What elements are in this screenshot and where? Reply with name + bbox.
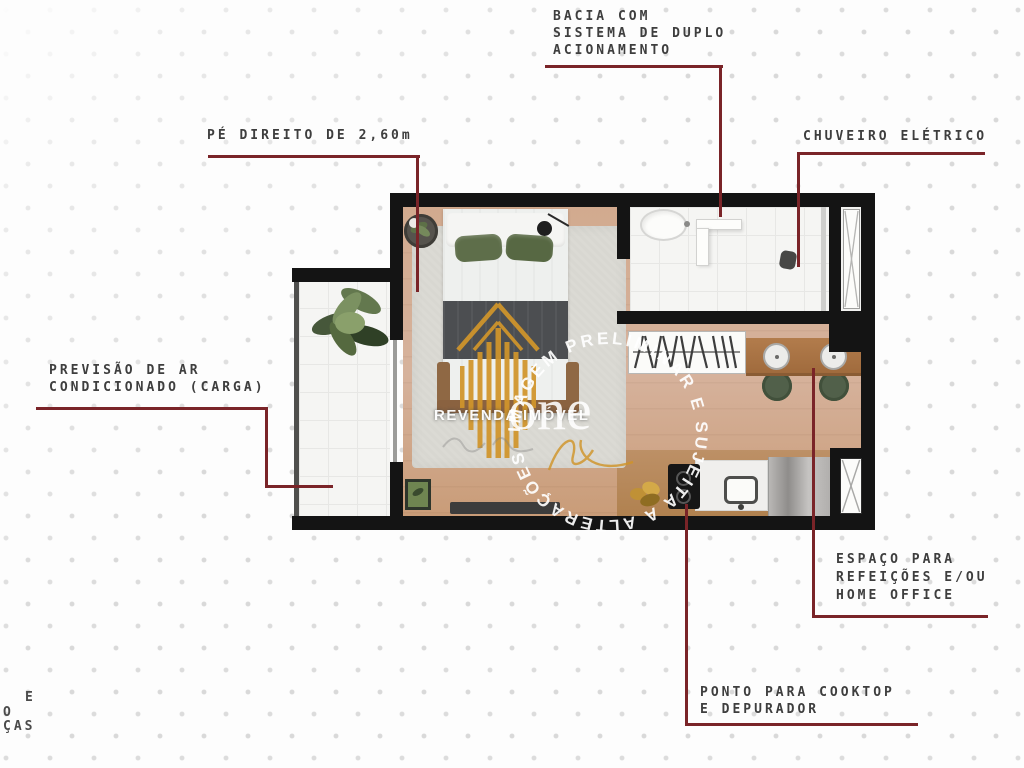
balcony-glass-door <box>393 340 397 462</box>
entry-door-x-icon <box>841 459 861 513</box>
bathroom-faucet <box>684 221 690 227</box>
callout-line-cooktop-v <box>685 504 688 726</box>
doormat <box>405 479 431 510</box>
plant-leaf <box>335 312 365 334</box>
wall-bathroom-closet <box>829 207 841 311</box>
callout-line-refeicoes-v <box>812 368 815 618</box>
wall-left-lower <box>390 462 403 516</box>
label-bacia: BACIA COM SISTEMA DE DUPLO ACIONAMENTO <box>553 8 726 59</box>
callout-line-chuveiro-v <box>797 152 800 267</box>
edge-fragment-3: ÇAS <box>3 718 35 735</box>
toilet-partition-v <box>696 228 709 266</box>
closet-panel <box>843 209 860 309</box>
kitchen-faucet <box>738 504 744 510</box>
plate-detail <box>832 355 836 359</box>
wall-balcony-top <box>292 268 403 282</box>
callout-line-cooktop-h <box>685 723 918 726</box>
callout-line-bacia-h <box>545 65 723 68</box>
doormat-leaf <box>411 486 424 497</box>
wall-left-upper <box>390 193 403 340</box>
label-bacia-line1: BACIA COM <box>553 8 726 25</box>
label-bacia-line2: SISTEMA DE DUPLO <box>553 25 726 42</box>
label-ar-line2: CONDICIONADO (CARGA) <box>49 379 266 396</box>
label-refeicoes-line1: ESPAÇO PARA <box>836 551 988 569</box>
balcony-railing <box>294 282 299 516</box>
disclaimer-arc-text: IMAGEM PRELIMINAR E SUJEITA A ALTERAÇÕES <box>505 329 711 535</box>
bed-green-pillow <box>505 233 554 262</box>
edge-fragment-1: E <box>25 689 36 706</box>
label-refeicoes: ESPAÇO PARA REFEIÇÕES E/OU HOME OFFICE <box>836 551 988 605</box>
label-pe-direito: PÉ DIREITO DE 2,60m <box>207 127 413 144</box>
kitchen-appliance <box>768 457 833 517</box>
wall-bathroom-left <box>617 193 630 259</box>
label-chuveiro: CHUVEIRO ELÉTRICO <box>803 128 987 145</box>
shower-glass <box>821 207 826 311</box>
label-ar-line1: PREVISÃO DE AR <box>49 362 266 379</box>
entry-door <box>840 458 862 514</box>
label-cooktop-line2: E DEPURADOR <box>700 701 895 718</box>
balcony-plant <box>305 286 391 364</box>
kitchen-sink <box>724 476 758 504</box>
pendant-lamp-icon <box>537 221 552 236</box>
label-bacia-line3: ACIONAMENTO <box>553 42 726 59</box>
callout-line-pedireito-v <box>416 155 419 292</box>
label-refeicoes-line2: REFEIÇÕES E/OU <box>836 569 988 587</box>
label-cooktop-line1: PONTO PARA COOKTOP <box>700 684 895 701</box>
floor-plan-image: REVENDA IMÓVEL one IMAGEM PRELIMINAR E S… <box>0 0 1024 768</box>
bed-green-pillow <box>454 233 503 262</box>
callout-line-ar-v <box>265 407 268 488</box>
plate-detail <box>775 355 779 359</box>
callout-line-pedireito-h <box>208 155 420 158</box>
callout-line-ar-h1 <box>36 407 268 410</box>
wall-top <box>390 193 875 207</box>
callout-line-bacia-v <box>719 65 722 217</box>
label-cooktop: PONTO PARA COOKTOP E DEPURADOR <box>700 684 895 718</box>
svg-text:IMAGEM PRELIMINAR E SUJEITA A: IMAGEM PRELIMINAR E SUJEITA A ALTERAÇÕES <box>505 329 711 535</box>
label-ar-condicionado: PREVISÃO DE AR CONDICIONADO (CARGA) <box>49 362 266 396</box>
callout-line-chuveiro-h <box>797 152 985 155</box>
callout-line-ar-h2 <box>265 485 333 488</box>
bathroom-sink <box>640 209 687 241</box>
bedside-tray <box>404 214 438 248</box>
wall-closet-bottom <box>829 311 861 352</box>
label-refeicoes-line3: HOME OFFICE <box>836 587 988 605</box>
closet-x-icon <box>844 210 859 308</box>
dining-plate <box>763 343 790 370</box>
callout-line-refeicoes-h <box>812 615 988 618</box>
